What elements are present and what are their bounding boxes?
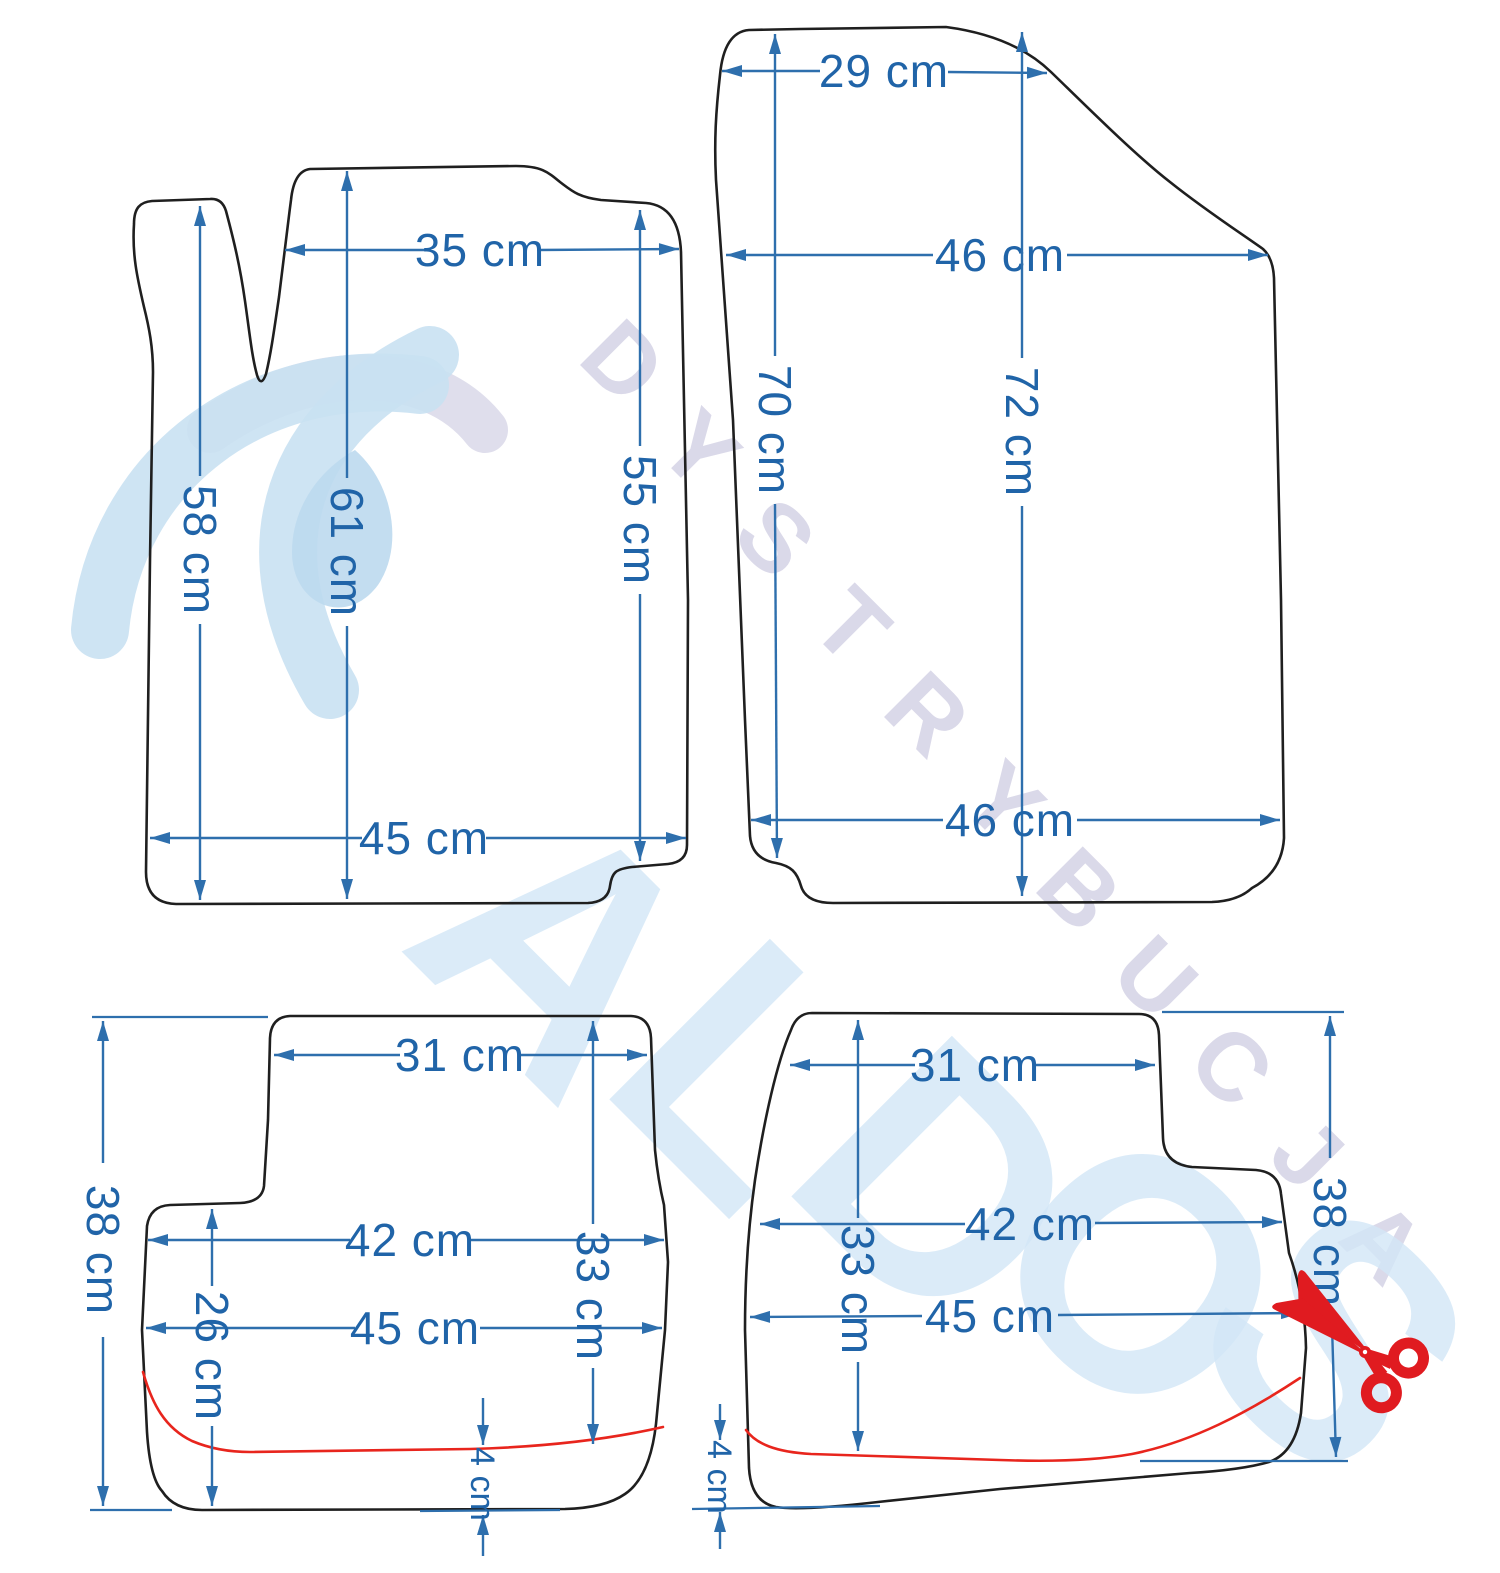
dim-label: 55 cm: [614, 455, 666, 585]
dim-label: 4 cm: [463, 1447, 501, 1521]
dim-label: 31 cm: [395, 1029, 525, 1081]
dim-label: 72 cm: [996, 367, 1048, 497]
dim-cut-gap: 4 cm: [692, 1404, 880, 1549]
dim-label: 58 cm: [174, 485, 226, 615]
dim-label: 46 cm: [945, 794, 1075, 846]
dim-label: 46 cm: [935, 229, 1065, 281]
dim-top-width: 29 cm: [722, 45, 1047, 97]
dim-label: 45 cm: [925, 1290, 1055, 1342]
dim-upper-width: 46 cm: [726, 229, 1268, 281]
watermark-letter: D: [561, 300, 686, 425]
dim-total-height: 38 cm: [77, 1017, 268, 1510]
dim-label: 61 cm: [321, 487, 373, 617]
dim-label: 31 cm: [910, 1039, 1040, 1091]
dim-label: 4 cm: [700, 1440, 738, 1514]
dim-label: 35 cm: [415, 224, 545, 276]
diagram-canvas: D Y S T R Y B U C J A A L D O S: [0, 0, 1500, 1573]
aldos-logo-swoosh-icon: [100, 355, 485, 690]
dim-left-height: 70 cm: [749, 34, 801, 858]
dim-top-width: 35 cm: [285, 224, 679, 276]
dim-label: 70 cm: [749, 365, 801, 495]
dim-label: 38 cm: [77, 1185, 129, 1315]
dim-cut-gap: 4 cm: [420, 1398, 560, 1556]
dim-center-height: 61 cm: [321, 171, 373, 899]
floor-mat-dimension-diagram: D Y S T R Y B U C J A A L D O S: [0, 0, 1500, 1573]
watermark-letter: R: [865, 652, 990, 777]
dim-label: 33 cm: [567, 1231, 619, 1361]
dim-label: 29 cm: [819, 45, 949, 97]
dim-label: 26 cm: [186, 1291, 238, 1421]
dim-left-height: 58 cm: [174, 206, 226, 900]
dim-label: 45 cm: [350, 1302, 480, 1354]
dim-label: 42 cm: [965, 1198, 1095, 1250]
dim-bottom-width: 46 cm: [751, 794, 1280, 846]
watermark-letter: B: [1017, 828, 1142, 953]
dim-label: 33 cm: [832, 1225, 884, 1355]
dim-front-height: 26 cm: [186, 1209, 238, 1506]
watermark-letter: T: [792, 567, 909, 684]
dim-label: 42 cm: [345, 1214, 475, 1266]
dim-label: 45 cm: [359, 812, 489, 864]
